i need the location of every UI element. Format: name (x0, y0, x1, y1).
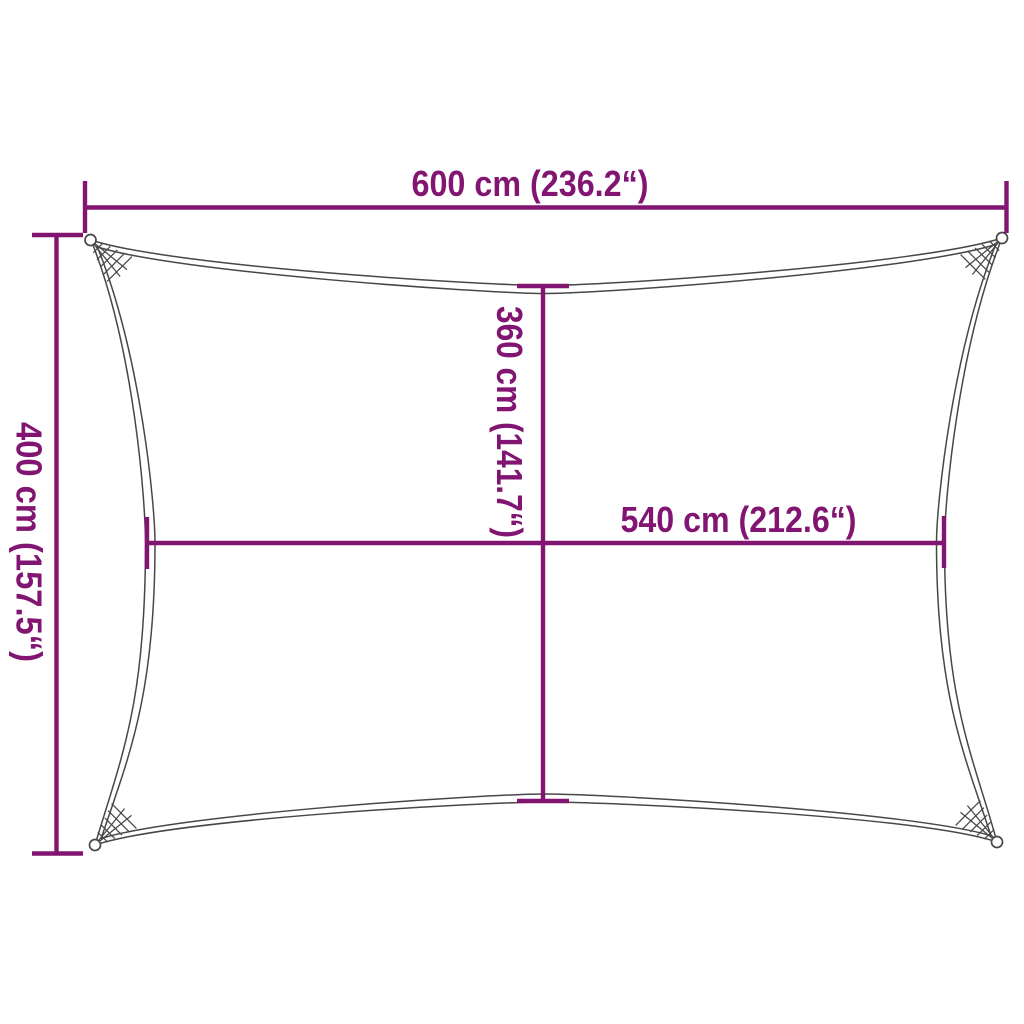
svg-text:400 cm (157.5“): 400 cm (157.5“) (9, 422, 50, 662)
svg-text:540 cm (212.6“): 540 cm (212.6“) (621, 499, 857, 540)
svg-text:360 cm (141.7“): 360 cm (141.7“) (489, 306, 530, 538)
svg-text:600 cm (236.2“): 600 cm (236.2“) (412, 163, 649, 204)
